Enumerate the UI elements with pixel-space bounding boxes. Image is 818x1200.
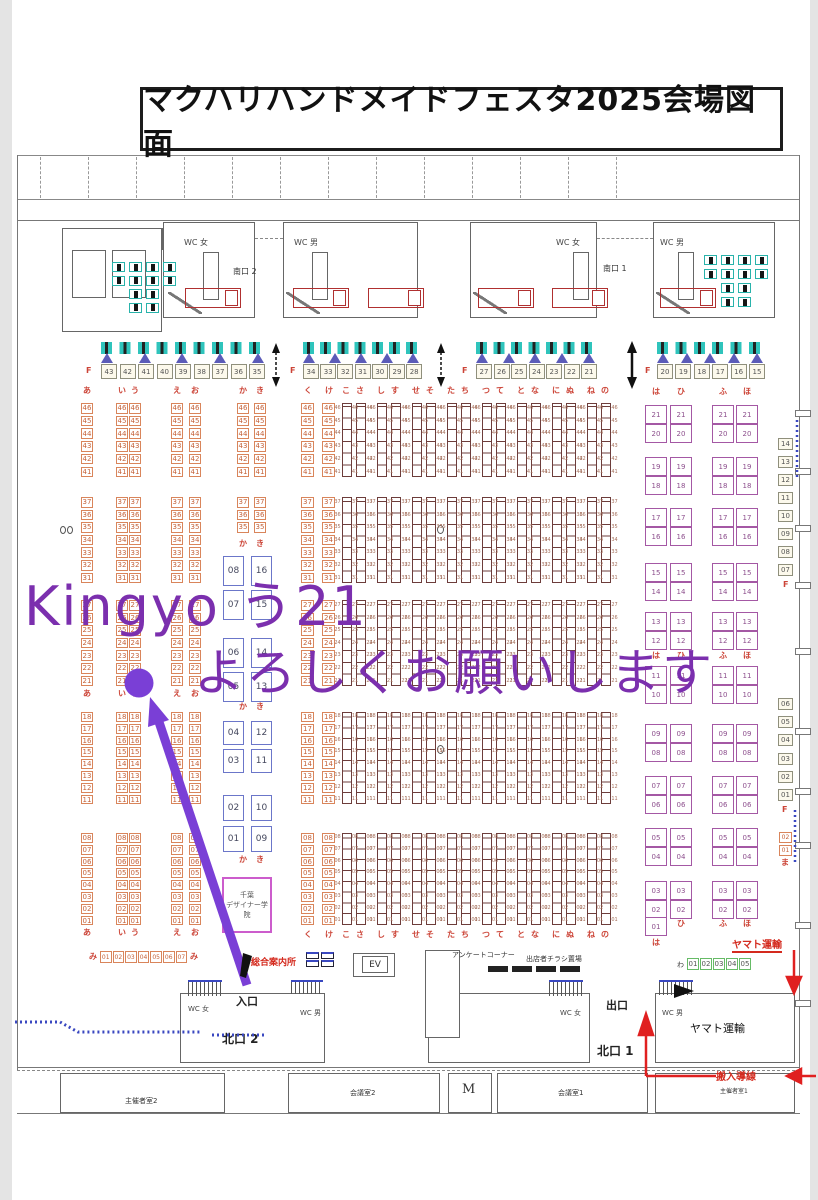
column-label: か [239, 856, 247, 864]
column-label: の [601, 387, 609, 395]
strip-booth-numbers: 18 17 16 15 14 13 12 11 [404, 711, 411, 805]
wall-tab [795, 842, 811, 849]
booth-ふ-05: 05 [712, 828, 734, 847]
table-cluster-left [146, 289, 159, 299]
booth-f-18: 18 [694, 364, 710, 379]
booth-き-45: 45 [254, 416, 266, 427]
booth-f-28: 28 [406, 364, 422, 379]
corridor-dash [232, 157, 233, 198]
booth-あ-18: 18 [81, 712, 93, 722]
strip-booth-numbers: 37 36 35 34 33 32 31 [404, 496, 411, 584]
booth-F-01: 01 [778, 789, 793, 801]
aisle-triangle-marker [704, 353, 716, 363]
booth-あ-15: 15 [81, 747, 93, 757]
booth-あ-13: 13 [81, 771, 93, 781]
booth-ふ-04: 04 [712, 847, 734, 866]
booth-は-06: 06 [645, 795, 667, 814]
booth-ひ-04: 04 [670, 847, 692, 866]
booth-お-34: 34 [189, 535, 201, 546]
booth-f-20: 20 [657, 364, 673, 379]
booth-え-23: 23 [171, 650, 183, 661]
school-booth: 千葉 デザイナー学院 [222, 877, 272, 933]
yamato-route-label: ヤマト運輸 [732, 936, 782, 953]
booth-f-35: 35 [249, 364, 265, 379]
strip-booth-numbers: 46 45 44 43 42 41 [611, 402, 618, 478]
booth-う-08: 08 [129, 833, 141, 843]
booth-い-35: 35 [116, 522, 128, 533]
table-cluster-right [738, 297, 751, 307]
booth-う-14: 14 [129, 759, 141, 769]
booth-か-36: 36 [237, 510, 249, 521]
booth-え-37: 37 [171, 497, 183, 508]
wc-women-label: WC 女 [188, 1004, 209, 1014]
booth-わ-05: 05 [739, 958, 751, 970]
booth-お-41: 41 [189, 467, 201, 478]
booth-あ-05: 05 [81, 868, 93, 878]
north-gate-2-label: 北口 2 [222, 1030, 259, 1047]
column-label: と [517, 387, 525, 395]
booth-お-35: 35 [189, 522, 201, 533]
booth-き-10: 10 [251, 795, 272, 821]
booth-あ-42: 42 [81, 454, 93, 465]
booth-あ-24: 24 [81, 638, 93, 649]
booth-い-45: 45 [116, 416, 128, 427]
elevator-shaft-1 [72, 250, 106, 298]
f-column-label: F [782, 806, 787, 814]
booth-ほ-02: 02 [736, 900, 758, 919]
flyer-rack-label: 出店者チラシ置場 [526, 954, 582, 964]
booth-か-43: 43 [237, 441, 249, 452]
booth-く-17: 17 [301, 724, 314, 734]
column-label: は [652, 388, 660, 396]
booth-か-04: 04 [223, 721, 244, 745]
booth-お-45: 45 [189, 416, 201, 427]
strip-booth-numbers: 08 07 06 05 04 03 02 01 [561, 832, 569, 926]
strip-booth-numbers: 18 17 16 15 14 13 12 11 [456, 711, 464, 805]
table-cluster-right [704, 269, 717, 279]
booth-え-11: 11 [171, 795, 183, 805]
booth-F-13: 13 [778, 456, 793, 468]
strip-booth-numbers: 46 45 44 43 42 41 [351, 402, 359, 478]
booth-え-03: 03 [171, 892, 183, 902]
survey-table [560, 966, 580, 972]
corridor-dash [40, 157, 41, 198]
booth-お-02: 02 [189, 904, 201, 914]
booth-は-04: 04 [645, 847, 667, 866]
strip-booth-numbers: 08 07 06 05 04 03 02 01 [456, 832, 464, 926]
f-row-label: F [86, 367, 91, 375]
booth-は-08: 08 [645, 743, 667, 762]
column-label: み [190, 953, 198, 961]
survey-table [512, 966, 532, 972]
strip-booth-numbers: 18 17 16 15 14 13 12 11 [351, 711, 359, 805]
annotation-greeting: よろしくお願いします [194, 648, 714, 698]
booth-き-36: 36 [254, 510, 266, 521]
strip-booth-numbers: 46 45 44 43 42 41 [526, 402, 534, 478]
booth-う-36: 36 [129, 510, 141, 521]
stairs-3 [549, 980, 583, 996]
column-label: こ [342, 387, 350, 395]
booth-ひ-07: 07 [670, 776, 692, 795]
booth-わ-02: 02 [700, 958, 712, 970]
table-cluster-right [721, 255, 734, 265]
booth-f-30: 30 [372, 364, 388, 379]
booth-ほ-04: 04 [736, 847, 758, 866]
column-label: い [118, 929, 126, 937]
booth-く-05: 05 [301, 868, 314, 878]
booth-み-02: 02 [113, 951, 125, 963]
table-cluster-left [129, 289, 142, 299]
booth-え-41: 41 [171, 467, 183, 478]
booth-f-21: 21 [581, 364, 597, 379]
column-label: き [256, 856, 264, 864]
strip-booth-numbers: 18 17 16 15 14 13 12 11 [421, 711, 429, 805]
column-label: ほ [743, 388, 751, 396]
booth-わ-01: 01 [687, 958, 699, 970]
booth-お-12: 12 [189, 783, 201, 793]
booth-f-17: 17 [712, 364, 728, 379]
ev-label: EV [369, 960, 381, 970]
booth-f-26: 26 [494, 364, 510, 379]
booth-く-04: 04 [301, 880, 314, 890]
page-edge-left [0, 0, 12, 1200]
booth-く-18: 18 [301, 712, 314, 722]
booth-い-02: 02 [116, 904, 128, 914]
booth-あ-17: 17 [81, 724, 93, 734]
booth-f-27: 27 [476, 364, 492, 379]
booth-f-40: 40 [157, 364, 173, 379]
ev-box: EV [362, 956, 388, 973]
strip-booth-numbers: 18 17 16 15 14 13 12 11 [526, 711, 534, 805]
booth-あ-41: 41 [81, 467, 93, 478]
booth-あ-01: 01 [81, 916, 93, 926]
booth-ひ-21: 21 [670, 405, 692, 424]
booth-ひ-05: 05 [670, 828, 692, 847]
column-label: ふ [719, 388, 727, 396]
wall-tab [795, 525, 811, 532]
wall-bottom [17, 1067, 800, 1068]
aisle-triangle-marker [381, 353, 393, 363]
corridor-dash [136, 157, 137, 198]
organizer-room-2-label: 主催者室2 [125, 1096, 157, 1106]
table-cluster-left [112, 262, 125, 272]
booth-あ-46: 46 [81, 403, 93, 414]
strip-booth-numbers: 37 36 35 34 33 32 31 [369, 496, 376, 584]
strip-booth-numbers: 18 17 16 15 14 13 12 11 [544, 711, 551, 805]
booth-お-01: 01 [189, 916, 201, 926]
booth-え-32: 32 [171, 560, 183, 571]
strip-booth-numbers: 08 07 06 05 04 03 02 01 [491, 832, 499, 926]
info-desk-label: 総合案内所 [251, 955, 296, 968]
f-column-label: F [783, 581, 788, 589]
booth-あ-22: 22 [81, 663, 93, 674]
booth-え-46: 46 [171, 403, 183, 414]
booth-f-31: 31 [355, 364, 371, 379]
booth-あ-34: 34 [81, 535, 93, 546]
strip-booth-numbers: 18 17 16 15 14 13 12 11 [491, 711, 499, 805]
strip-booth-numbers: 18 17 16 15 14 13 12 11 [474, 711, 481, 805]
booth-ほ-08: 08 [736, 743, 758, 762]
booth-き-09: 09 [251, 826, 272, 852]
aisle-triangle-marker [529, 353, 541, 363]
column-label: か [239, 387, 247, 395]
booth-ふ-06: 06 [712, 795, 734, 814]
booth-あ-07: 07 [81, 845, 93, 855]
booth-わ-04: 04 [726, 958, 738, 970]
booth-あ-06: 06 [81, 857, 93, 867]
booth-う-35: 35 [129, 522, 141, 533]
booth-f-19: 19 [675, 364, 691, 379]
f-row-label: F [462, 367, 467, 375]
booth-い-46: 46 [116, 403, 128, 414]
booth-う-34: 34 [129, 535, 141, 546]
aisle-triangle-marker [728, 353, 740, 363]
booth-f-24: 24 [529, 364, 545, 379]
booth-え-24: 24 [171, 638, 183, 649]
booth-お-32: 32 [189, 560, 201, 571]
meeting-room-2-label: 会議室2 [350, 1088, 375, 1098]
strip-booth-numbers: 08 07 06 05 04 03 02 01 [439, 832, 446, 926]
column-label: か [239, 540, 247, 548]
aisle-triangle-marker [303, 353, 315, 363]
booth-お-46: 46 [189, 403, 201, 414]
column-label: お [191, 387, 199, 395]
booth-う-16: 16 [129, 736, 141, 746]
booth-う-44: 44 [129, 428, 141, 439]
booth-え-13: 13 [171, 771, 183, 781]
booth-う-37: 37 [129, 497, 141, 508]
booth-か-37: 37 [237, 497, 249, 508]
booth-え-15: 15 [171, 747, 183, 757]
corridor-dash [424, 157, 425, 198]
info-desk-table [306, 952, 319, 959]
column-label: て [496, 931, 504, 939]
booth-み-05: 05 [150, 951, 162, 963]
booth-あ-36: 36 [81, 510, 93, 521]
booth-い-17: 17 [116, 724, 128, 734]
booth-ほ-19: 19 [736, 457, 758, 476]
booth-F-14: 14 [778, 438, 793, 450]
entrance-label: 入口 [236, 993, 258, 1009]
column-label: ね [587, 387, 595, 395]
booth-ほ-06: 06 [736, 795, 758, 814]
booth-か-41: 41 [237, 467, 249, 478]
info-desk-table [321, 952, 334, 959]
column-label: に [552, 931, 560, 939]
column-label: す [391, 931, 399, 939]
booth-あ-14: 14 [81, 759, 93, 769]
booth-ふ-17: 17 [712, 508, 734, 527]
column-label: ち [461, 931, 469, 939]
wall-bottom-2 [17, 1113, 800, 1114]
booth-お-42: 42 [189, 454, 201, 465]
booth-か-44: 44 [237, 428, 249, 439]
booth-い-13: 13 [116, 771, 128, 781]
booth-く-12: 12 [301, 783, 314, 793]
table-cluster-right [738, 283, 751, 293]
annotation-arrow-head [148, 697, 169, 727]
booth-ひ-13: 13 [670, 612, 692, 631]
booth-え-01: 01 [171, 916, 183, 926]
booth-く-41: 41 [301, 467, 314, 478]
booth-く-03: 03 [301, 892, 314, 902]
booth-い-41: 41 [116, 467, 128, 478]
booth-ひ-14: 14 [670, 582, 692, 601]
booth-み-03: 03 [125, 951, 137, 963]
wall-tab [795, 922, 811, 929]
strip-booth-numbers: 37 36 35 34 33 32 31 [561, 496, 569, 584]
column-label: ふ [719, 920, 727, 928]
booth-い-01: 01 [116, 916, 128, 926]
booth-あ-12: 12 [81, 783, 93, 793]
booth-い-44: 44 [116, 428, 128, 439]
exit-label: 出口 [606, 997, 628, 1013]
stairs-4 [659, 980, 693, 995]
strip-booth-numbers: 37 36 35 34 33 32 31 [421, 496, 429, 584]
booth-う-21: 21 [129, 676, 141, 687]
strip-booth-numbers: 18 17 16 15 14 13 12 11 [579, 711, 586, 805]
booth-ひ-06: 06 [670, 795, 692, 814]
strip-booth-numbers: 37 36 35 34 33 32 31 [456, 496, 464, 584]
strip-booth-numbers: 46 45 44 43 42 41 [544, 402, 551, 478]
strip-booth-numbers: 18 17 16 15 14 13 12 11 [386, 711, 394, 805]
booth-F-09: 09 [778, 528, 793, 540]
booth-お-06: 06 [189, 857, 201, 867]
booth-は-16: 16 [645, 527, 667, 546]
booth-う-15: 15 [129, 747, 141, 757]
corridor-dash [88, 157, 89, 198]
booth-ひ-16: 16 [670, 527, 692, 546]
aisle-triangle-marker [329, 353, 341, 363]
column-label: ふ [719, 652, 727, 660]
truck-cab-icon [408, 290, 421, 306]
table-cluster-left [163, 262, 176, 272]
booth-い-03: 03 [116, 892, 128, 902]
booth-き-41: 41 [254, 467, 266, 478]
strip-booth-numbers: 37 36 35 34 33 32 31 [386, 496, 394, 584]
corridor-dash [472, 157, 473, 198]
booth-ふ-10: 10 [712, 685, 734, 704]
booth-う-32: 32 [129, 560, 141, 571]
booth-ひ-19: 19 [670, 457, 692, 476]
booth-え-43: 43 [171, 441, 183, 452]
booth-は-20: 20 [645, 424, 667, 443]
booth-か-01: 01 [223, 826, 244, 852]
wall-top [17, 220, 800, 221]
survey-table [536, 966, 556, 972]
booth-は-18: 18 [645, 476, 667, 495]
f-row-label: F [645, 367, 650, 375]
table-cluster-right [704, 255, 717, 265]
booth-う-46: 46 [129, 403, 141, 414]
carry-in-route-label: 搬入導線 [716, 1068, 756, 1083]
wall-tab [795, 728, 811, 735]
booth-く-11: 11 [301, 795, 314, 805]
booth-え-04: 04 [171, 880, 183, 890]
booth-あ-16: 16 [81, 736, 93, 746]
booth-い-11: 11 [116, 795, 128, 805]
column-label: た [447, 387, 455, 395]
booth-お-03: 03 [189, 892, 201, 902]
table-cluster-left [146, 262, 159, 272]
wall-left [17, 155, 18, 1070]
booth-ふ-20: 20 [712, 424, 734, 443]
strip-booth-numbers: 08 07 06 05 04 03 02 01 [369, 832, 376, 926]
wall-tab [795, 410, 811, 417]
booth-う-05: 05 [129, 868, 141, 878]
column-label: く [304, 931, 312, 939]
table-cluster-left [163, 276, 176, 286]
booth-ふ-21: 21 [712, 405, 734, 424]
column-label: え [173, 929, 181, 937]
booth-く-46: 46 [301, 403, 314, 414]
booth-え-12: 12 [171, 783, 183, 793]
column-label: に [552, 387, 560, 395]
booth-ほ-13: 13 [736, 612, 758, 631]
booth-f-32: 32 [337, 364, 353, 379]
booth-ふ-02: 02 [712, 900, 734, 919]
booth-う-22: 22 [129, 663, 141, 674]
booth-f-37: 37 [212, 364, 228, 379]
booth-f-39: 39 [175, 364, 191, 379]
booth-く-43: 43 [301, 441, 314, 452]
strip-booth-numbers: 37 36 35 34 33 32 31 [596, 496, 604, 584]
column-label: ひ [677, 388, 685, 396]
column-label: く [304, 387, 312, 395]
booth-ふ-16: 16 [712, 527, 734, 546]
booth-え-33: 33 [171, 547, 183, 558]
booth-お-36: 36 [189, 510, 201, 521]
column-label: は [652, 939, 660, 947]
aisle-triangle-marker [751, 353, 763, 363]
school-name-line2: デザイナー学院 [224, 900, 270, 920]
south-gate-1-label: 南口 1 [603, 263, 627, 274]
column-label: ひ [677, 920, 685, 928]
booth-う-12: 12 [129, 783, 141, 793]
f-row-label: F [290, 367, 295, 375]
strip-booth-numbers: 18 17 16 15 14 13 12 11 [611, 711, 618, 805]
column-label: せ [412, 931, 420, 939]
strip-booth-numbers: 37 36 35 34 33 32 31 [474, 496, 481, 584]
column-label: い [118, 387, 126, 395]
booth-あ-33: 33 [81, 547, 93, 558]
booth-み-07: 07 [176, 951, 188, 963]
booth-ふ-19: 19 [712, 457, 734, 476]
column-label: さ [356, 387, 364, 395]
booth-お-44: 44 [189, 428, 201, 439]
booth-く-33: 33 [301, 547, 314, 558]
booth-あ-23: 23 [81, 650, 93, 661]
column-label: う [131, 929, 139, 937]
booth-う-18: 18 [129, 712, 141, 722]
booth-わ-03: 03 [713, 958, 725, 970]
column-label: な [531, 387, 539, 395]
booth-F-08: 08 [778, 546, 793, 558]
corridor-dash [328, 157, 329, 198]
booth-い-42: 42 [116, 454, 128, 465]
booth-ほ-03: 03 [736, 881, 758, 900]
column-label: ほ [743, 652, 751, 660]
table-cluster-right [738, 255, 751, 265]
column-label: い [118, 690, 126, 698]
booth-い-22: 22 [116, 663, 128, 674]
booth-え-16: 16 [171, 736, 183, 746]
stairs-2 [291, 980, 323, 994]
booth-く-42: 42 [301, 454, 314, 465]
wall-tab [795, 582, 811, 589]
booth-は-01: 01 [645, 917, 667, 936]
wall-right [799, 155, 800, 1070]
